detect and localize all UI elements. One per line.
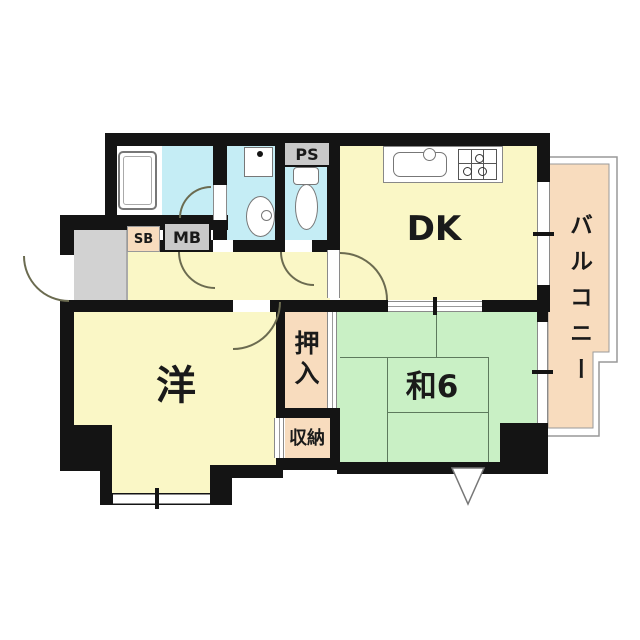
tatami-seam (436, 308, 437, 357)
wall-japanese-right-top (537, 300, 548, 322)
shoe-box: SB (127, 226, 160, 252)
entrance-door-arc (23, 256, 69, 302)
wall-hall-top-b (233, 240, 285, 252)
door-gap-washroom (213, 240, 233, 252)
toilet-bowl (295, 184, 318, 230)
balcony-label: バルコニー (564, 200, 592, 405)
sliding-door-oshiire (327, 312, 337, 408)
kitchen-counter (383, 146, 503, 183)
pipe-space-label: PS (295, 145, 318, 164)
entrance-genkan-floor (74, 230, 127, 300)
tatami-seam (340, 357, 488, 358)
sliding-door-storage (274, 418, 284, 458)
wall-western-oshiire-divider (276, 312, 285, 418)
door-gap-dk (327, 250, 340, 298)
window-tick (532, 370, 553, 374)
dk-label: DK (404, 210, 464, 248)
western-room-floor-ext (112, 465, 210, 495)
sliding-door-tick (433, 297, 437, 315)
wall-western-left (60, 312, 74, 425)
floor-plan: SB MB PS DK 洋 和6 バルコニー 押入 収納 (0, 0, 640, 640)
wall-japanese-right-chunk (500, 423, 548, 474)
tatami-seam (387, 357, 388, 462)
toilet-tank (293, 167, 319, 185)
faucet (423, 148, 436, 161)
entrance-arrow (448, 466, 488, 508)
storage-label: 収納 (286, 429, 328, 449)
stove (458, 149, 497, 180)
door-gap-toilet (285, 240, 312, 252)
meter-box-label: MB (173, 228, 201, 247)
tatami-seam (387, 412, 488, 413)
window-tick (155, 488, 159, 509)
pipe-space: PS (283, 141, 331, 167)
wall-bathroom-left (105, 133, 117, 215)
wall-step-chunk (60, 425, 112, 471)
kitchen-sink (393, 152, 447, 177)
wall-western-bottom-right (210, 465, 283, 478)
shoe-box-label: SB (134, 232, 153, 247)
wall-storage-bottom (276, 458, 340, 470)
tatami-seam (488, 357, 489, 462)
bathtub (118, 151, 157, 210)
japanese-room-label: 和6 (400, 370, 464, 404)
window-western-bottom (113, 494, 210, 504)
wall-hall-bottom-a (60, 300, 233, 312)
wall-hall-bottom-b (270, 300, 388, 312)
oshiire-label: 押入 (292, 328, 319, 392)
door-gap-bathroom (213, 185, 227, 220)
window-tick (533, 232, 554, 236)
wall-bath-wash-divider (213, 146, 227, 185)
washing-machine (244, 147, 273, 177)
meter-box: MB (163, 222, 211, 252)
washbasin (246, 196, 275, 237)
wall-dk-right-top (537, 133, 550, 182)
western-room-label: 洋 (154, 364, 198, 408)
